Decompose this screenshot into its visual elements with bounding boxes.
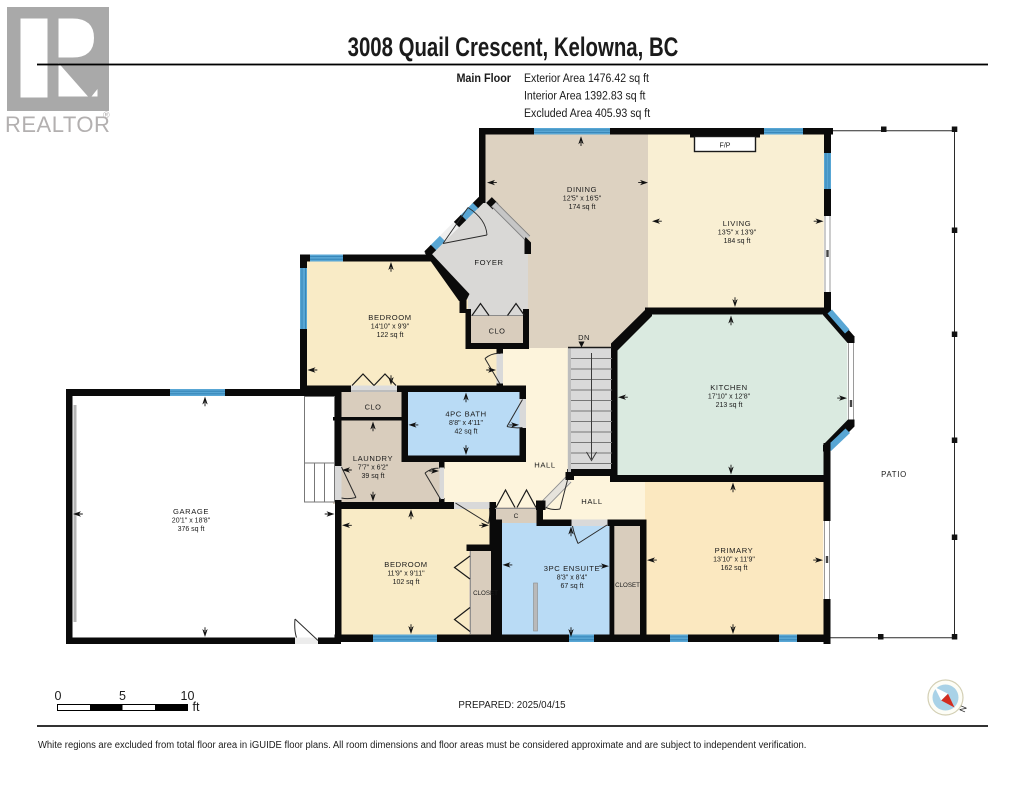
svg-text:BEDROOM: BEDROOM: [368, 313, 411, 322]
svg-text:12'5" x 16'5": 12'5" x 16'5": [563, 196, 602, 203]
svg-text:13'5" x 13'9": 13'5" x 13'9": [718, 230, 757, 237]
svg-text:KITCHEN: KITCHEN: [710, 383, 748, 392]
svg-text:ft: ft: [193, 700, 200, 714]
svg-text:Interior Area 1392.83 sq ft: Interior Area 1392.83 sq ft: [524, 90, 646, 103]
svg-text:122 sq ft: 122 sq ft: [377, 332, 404, 339]
svg-text:LIVING: LIVING: [723, 219, 752, 228]
svg-text:®: ®: [103, 110, 110, 120]
svg-text:4PC BATH: 4PC BATH: [445, 410, 486, 419]
svg-text:0: 0: [55, 689, 62, 703]
svg-text:REALTOR: REALTOR: [5, 112, 110, 137]
svg-text:3PC ENSUITE: 3PC ENSUITE: [544, 564, 600, 573]
svg-text:376 sq ft: 376 sq ft: [178, 526, 205, 533]
svg-text:C: C: [514, 513, 519, 520]
svg-text:13'10" x 11'9": 13'10" x 11'9": [713, 557, 755, 564]
svg-text:PRIMARY: PRIMARY: [715, 546, 754, 555]
svg-text:11'9" x 9'11": 11'9" x 9'11": [387, 571, 425, 578]
svg-text:213 sq ft: 213 sq ft: [716, 402, 743, 409]
svg-text:174 sq ft: 174 sq ft: [569, 204, 596, 211]
svg-text:Exterior Area 1476.42 sq ft: Exterior Area 1476.42 sq ft: [524, 72, 650, 85]
svg-text:184 sq ft: 184 sq ft: [724, 238, 751, 245]
svg-text:FOYER: FOYER: [474, 258, 503, 267]
svg-text:F/P: F/P: [720, 143, 731, 150]
svg-text:GARAGE: GARAGE: [173, 507, 209, 516]
svg-text:CLOSET: CLOSET: [615, 582, 640, 589]
svg-text:White regions are excluded fro: White regions are excluded from total fl…: [38, 740, 806, 751]
svg-text:CLO: CLO: [489, 327, 506, 336]
svg-text:8'3" x 8'4": 8'3" x 8'4": [557, 575, 588, 582]
svg-text:3008 Quail Crescent, Kelowna,: 3008 Quail Crescent, Kelowna, BC: [348, 34, 679, 63]
svg-text:CLO: CLO: [365, 403, 382, 412]
svg-text:HALL: HALL: [581, 497, 602, 506]
svg-text:DINING: DINING: [567, 185, 597, 194]
svg-text:20'1" x 18'8": 20'1" x 18'8": [172, 518, 211, 525]
svg-text:42 sq ft: 42 sq ft: [455, 429, 478, 436]
svg-text:7'7" x 6'2": 7'7" x 6'2": [358, 465, 389, 472]
svg-text:5: 5: [119, 689, 126, 703]
svg-text:102 sq ft: 102 sq ft: [393, 579, 420, 586]
svg-text:67 sq ft: 67 sq ft: [561, 583, 584, 590]
svg-text:HALL: HALL: [534, 461, 555, 470]
svg-text:DN: DN: [578, 333, 590, 342]
svg-text:Main Floor: Main Floor: [456, 73, 511, 86]
svg-text:CLOSET: CLOSET: [473, 590, 498, 597]
svg-text:PATIO: PATIO: [881, 470, 907, 479]
svg-text:BEDROOM: BEDROOM: [384, 560, 427, 569]
svg-text:39 sq ft: 39 sq ft: [362, 473, 385, 480]
svg-text:LAUNDRY: LAUNDRY: [353, 454, 393, 463]
svg-text:162 sq ft: 162 sq ft: [721, 565, 748, 572]
svg-text:8'8" x 4'11": 8'8" x 4'11": [449, 420, 483, 427]
svg-text:PREPARED: 2025/04/15: PREPARED: 2025/04/15: [458, 700, 566, 711]
svg-text:14'10" x 9'9": 14'10" x 9'9": [371, 324, 410, 331]
svg-text:17'10" x 12'8": 17'10" x 12'8": [708, 394, 751, 401]
svg-text:Excluded Area 405.93 sq ft: Excluded Area 405.93 sq ft: [524, 107, 651, 120]
